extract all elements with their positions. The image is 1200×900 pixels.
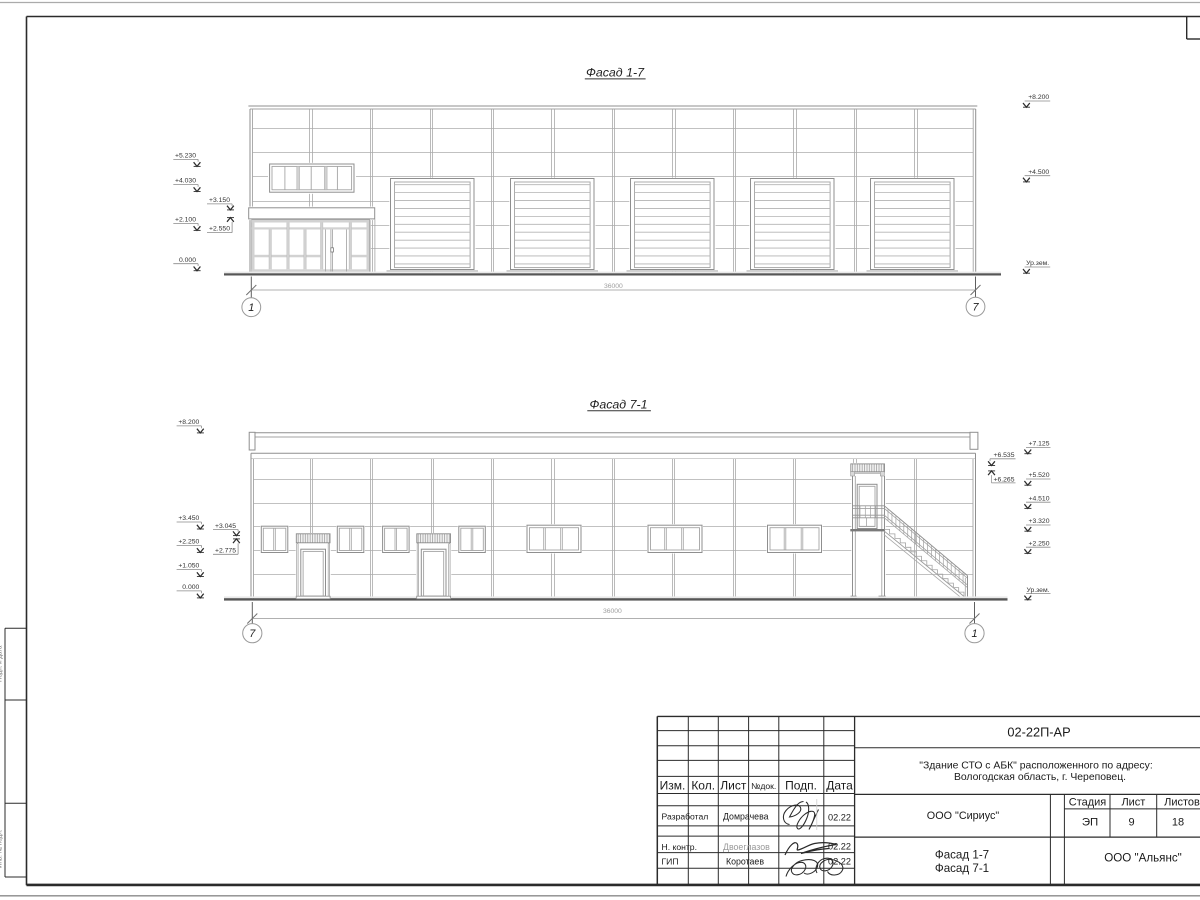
svg-text:ООО "Альянс": ООО "Альянс" (1104, 851, 1182, 864)
svg-text:+4.500: +4.500 (1028, 169, 1049, 176)
svg-text:+8.200: +8.200 (178, 419, 199, 426)
svg-text:+7.125: +7.125 (1029, 441, 1050, 448)
svg-text:+3.320: +3.320 (1029, 518, 1050, 525)
svg-text:+2.250: +2.250 (178, 539, 199, 546)
svg-text:1: 1 (971, 628, 977, 640)
svg-text:Фасад 1-7: Фасад 1-7 (935, 849, 989, 862)
svg-text:+5.520: +5.520 (1029, 472, 1050, 479)
svg-text:№док.: №док. (751, 781, 776, 791)
svg-text:+2.250: +2.250 (1029, 540, 1050, 547)
svg-text:0.000: 0.000 (182, 584, 199, 591)
svg-text:Ур.зем.: Ур.зем. (1026, 587, 1049, 594)
svg-text:36000: 36000 (603, 608, 622, 615)
svg-text:02-22П-АР: 02-22П-АР (1007, 725, 1070, 740)
svg-text:+8.200: +8.200 (1028, 94, 1049, 101)
svg-text:ГИП: ГИП (662, 856, 679, 866)
svg-text:Кол.: Кол. (691, 778, 715, 792)
svg-text:+2.100: +2.100 (175, 217, 196, 224)
svg-text:Лист: Лист (1121, 797, 1145, 809)
svg-text:+5.230: +5.230 (175, 153, 196, 160)
svg-text:+4.510: +4.510 (1029, 495, 1050, 502)
svg-text:Подп. и дата: Подп. и дата (0, 645, 3, 682)
svg-text:Подп.: Подп. (785, 778, 817, 792)
svg-text:Домрачева: Домрачева (723, 811, 769, 821)
svg-text:Ур.зем.: Ур.зем. (1026, 260, 1049, 267)
svg-text:02.22: 02.22 (828, 857, 851, 867)
svg-text:+2.775: +2.775 (215, 547, 236, 554)
svg-text:Инв. № подл.: Инв. № подл. (0, 829, 3, 868)
svg-text:Стадия: Стадия (1069, 797, 1107, 809)
svg-text:+3.150: +3.150 (209, 197, 230, 204)
svg-text:7: 7 (249, 628, 256, 640)
svg-text:Фасад 7-1: Фасад 7-1 (935, 862, 989, 875)
svg-text:Фасад 1-7: Фасад 1-7 (586, 65, 645, 79)
svg-text:0.000: 0.000 (179, 257, 196, 264)
svg-text:7: 7 (972, 302, 979, 314)
svg-text:Изм.: Изм. (660, 778, 686, 792)
svg-text:+2.550: +2.550 (209, 226, 230, 233)
svg-text:+1.050: +1.050 (178, 563, 199, 570)
svg-text:36000: 36000 (604, 283, 623, 290)
svg-text:Листов: Листов (1164, 797, 1200, 809)
svg-text:Лист: Лист (720, 778, 747, 792)
svg-text:+3.450: +3.450 (178, 515, 199, 522)
svg-text:+3.045: +3.045 (215, 523, 236, 530)
svg-text:Дата: Дата (826, 778, 853, 792)
svg-text:ЭП: ЭП (1082, 817, 1098, 829)
svg-text:Н. контр.: Н. контр. (662, 842, 697, 852)
svg-text:Двоеглазов: Двоеглазов (723, 842, 770, 852)
svg-text:9: 9 (1128, 817, 1134, 829)
svg-text:1: 1 (248, 302, 254, 314)
svg-text:Вологодская область, г. Черепо: Вологодская область, г. Череповец. (954, 771, 1126, 783)
svg-text:Разработал: Разработал (662, 811, 709, 821)
svg-text:02.22: 02.22 (828, 812, 851, 822)
svg-text:18: 18 (1172, 817, 1184, 829)
svg-text:+4.030: +4.030 (175, 178, 196, 185)
svg-text:Коротаев: Коротаев (726, 856, 764, 866)
svg-text:+6.535: +6.535 (994, 452, 1015, 459)
svg-text:"Здание СТО с АБК" расположенн: "Здание СТО с АБК" расположенного по адр… (919, 760, 1152, 771)
svg-text:Фасад 7-1: Фасад 7-1 (589, 397, 647, 411)
svg-text:ООО "Сириус": ООО "Сириус" (927, 810, 1000, 822)
